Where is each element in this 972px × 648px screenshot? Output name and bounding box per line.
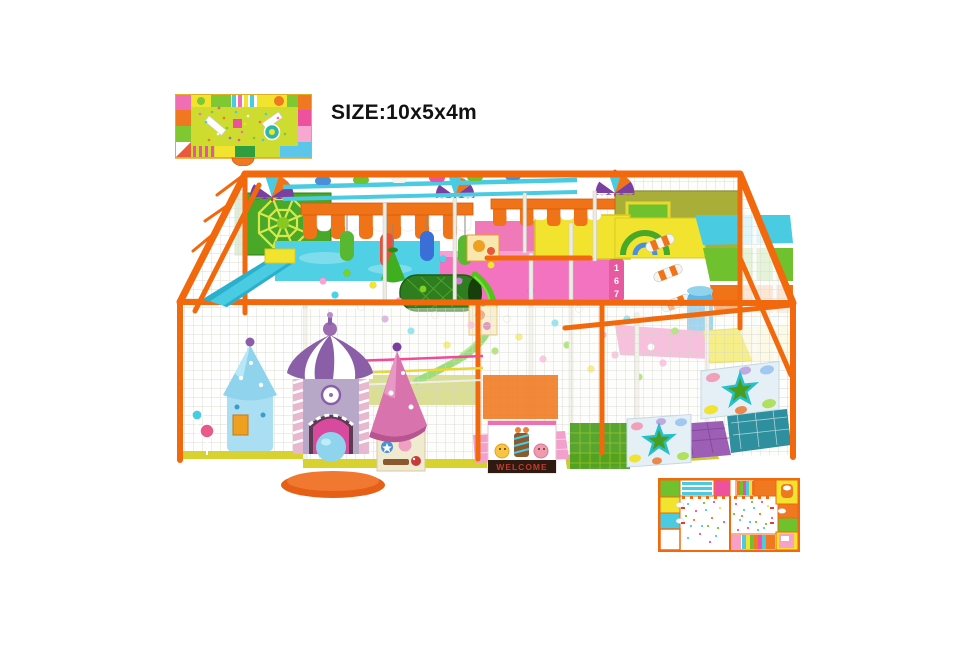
size-label: SIZE:10x5x4m — [331, 101, 477, 125]
climbing-wall-panel-b — [701, 361, 779, 419]
climbing-wall-panel-a — [627, 415, 691, 467]
climb-number-6: 6 — [614, 276, 619, 286]
climb-number-1: 1 — [614, 263, 619, 273]
top-view-thumbnail — [175, 94, 312, 166]
product-photo-page: SIZE:10x5x4m — [0, 0, 972, 648]
top-view-layout — [175, 94, 312, 166]
playground-main-render: 1 6 7 — [175, 163, 805, 503]
welcome-sign: WELCOME — [488, 421, 556, 473]
floor-plan — [659, 479, 799, 551]
floor-plan-thumbnail — [658, 478, 800, 552]
welcome-sign-text: WELCOME — [496, 462, 547, 472]
climb-number-7: 7 — [614, 289, 619, 299]
